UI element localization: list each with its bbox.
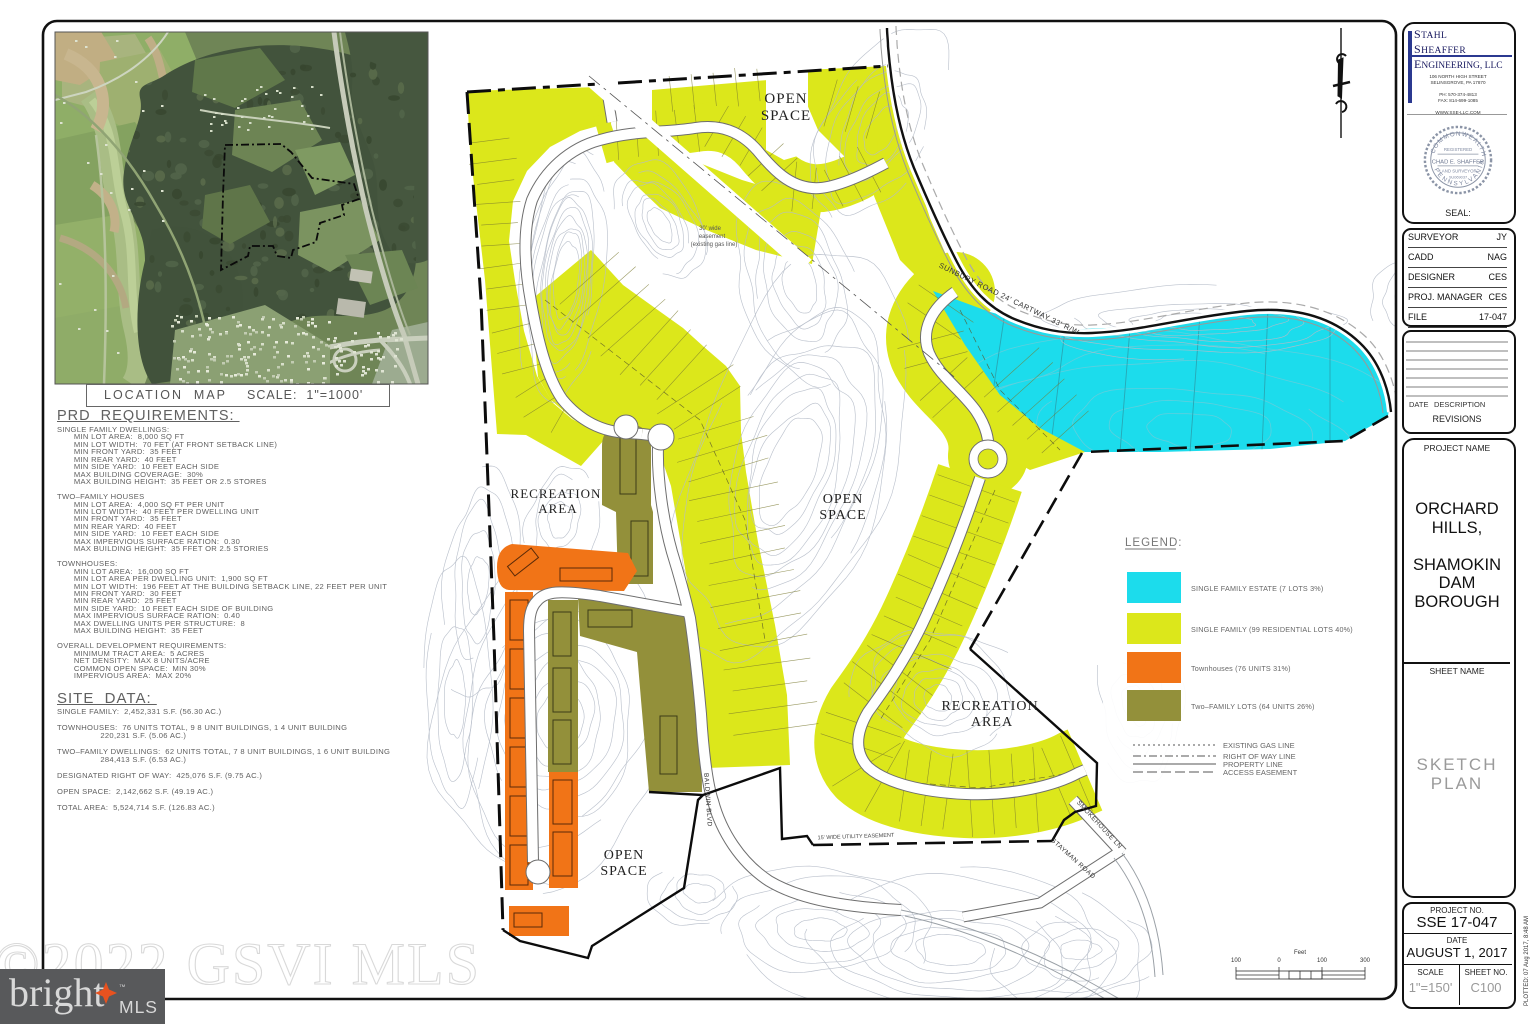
svg-text:SPACE: SPACE — [819, 508, 866, 523]
svg-text:RECREATION: RECREATION — [941, 699, 1038, 714]
svg-text:SINGLE FAMILY (99 RESIDENTIAL: SINGLE FAMILY (99 RESIDENTIAL LOTS 40%) — [1191, 625, 1353, 634]
svg-text:Feet: Feet — [1294, 950, 1306, 956]
svg-text:DESCRIPTION: DESCRIPTION — [1434, 400, 1485, 409]
svg-text:100: 100 — [1231, 958, 1242, 964]
svg-text:RECREATION: RECREATION — [511, 486, 602, 501]
svg-text:OPEN: OPEN — [604, 848, 645, 863]
svg-text:Townhouses (76 UNITS 31%): Townhouses (76 UNITS 31%) — [1191, 664, 1291, 673]
svg-text:™: ™ — [119, 984, 126, 991]
svg-text:ACCESS EASEMENT: ACCESS EASEMENT — [1223, 768, 1298, 777]
svg-text:30' wide: 30' wide — [699, 226, 721, 232]
svg-text:0: 0 — [1277, 958, 1281, 964]
svg-text:SPACE: SPACE — [761, 108, 811, 124]
svg-text:CHAD E. SHAFFER: CHAD E. SHAFFER — [1432, 159, 1484, 165]
svg-text:OPEN: OPEN — [823, 492, 864, 507]
svg-text:SPACE: SPACE — [600, 864, 647, 879]
svg-text:REVISIONS: REVISIONS — [1432, 414, 1481, 424]
svg-text:DATE: DATE — [1409, 400, 1428, 409]
svg-text:easement: easement — [699, 234, 726, 240]
svg-text:SU069037: SU069037 — [1449, 174, 1467, 179]
svg-text:AREA: AREA — [538, 501, 577, 516]
svg-text:AREA: AREA — [971, 715, 1013, 730]
svg-text:SINGLE FAMILY ESTATE (7 LOTS 3: SINGLE FAMILY ESTATE (7 LOTS 3%) — [1191, 584, 1323, 593]
svg-text:LEGEND:: LEGEND: — [1125, 537, 1183, 549]
svg-text:EXISTING GAS LINE: EXISTING GAS LINE — [1223, 741, 1295, 750]
svg-text:LAND SURVEYOR: LAND SURVEYOR — [1439, 169, 1476, 174]
svg-text:Two–FAMILY LOTS (64 UNITS 26%): Two–FAMILY LOTS (64 UNITS 26%) — [1191, 702, 1315, 711]
svg-text:(existing gas line): (existing gas line) — [691, 242, 738, 248]
svg-text:100: 100 — [1317, 958, 1328, 964]
svg-text:STAYMAN ROAD: STAYMAN ROAD — [1049, 837, 1096, 880]
svg-text:COMMONWEALTH OF: COMMONWEALTH OF — [1422, 124, 1487, 160]
svg-text:300: 300 — [1360, 958, 1371, 964]
svg-text:15' WIDE UTILITY EASEMENT: 15' WIDE UTILITY EASEMENT — [818, 833, 896, 842]
svg-text:REGISTERED: REGISTERED — [1444, 147, 1472, 152]
svg-text:OPEN: OPEN — [764, 91, 807, 107]
